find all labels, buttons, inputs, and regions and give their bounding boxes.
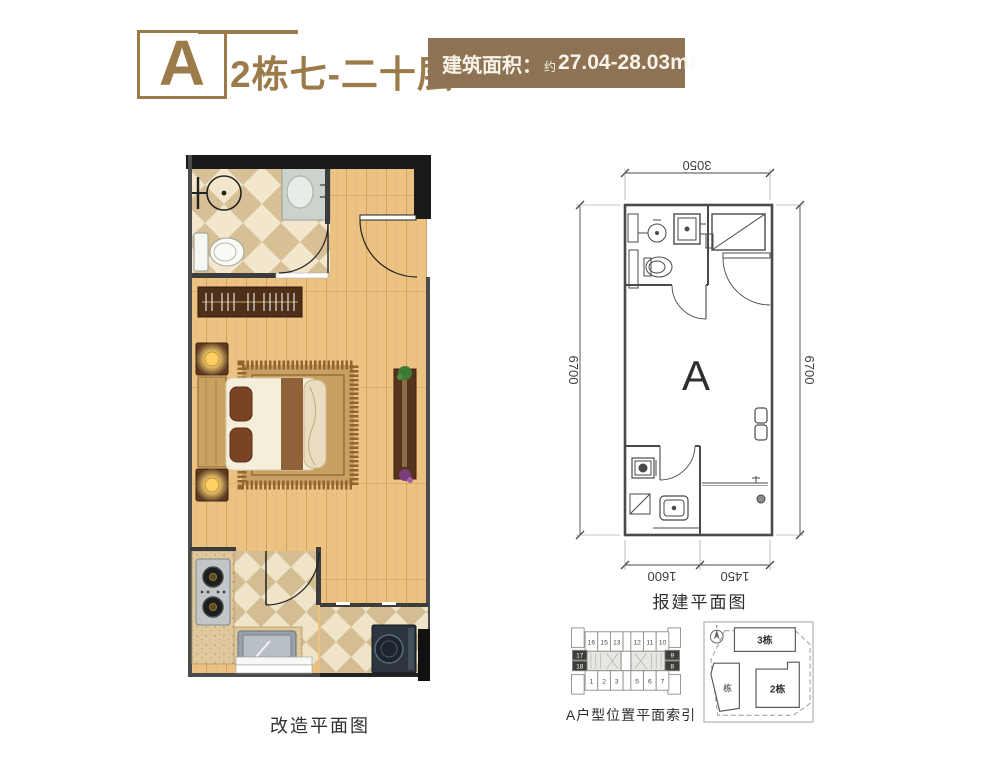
sink-icon <box>287 176 313 208</box>
console-table <box>394 366 416 483</box>
svg-text:10: 10 <box>659 639 667 646</box>
unit-logo-box: A <box>137 30 227 99</box>
svg-text:2: 2 <box>602 678 606 685</box>
floor-drain-icon <box>757 495 765 503</box>
wardrobe <box>198 287 302 317</box>
approval-plan-caption: 报建平面图 <box>620 588 780 613</box>
building-3-label: 3栋 <box>757 634 772 647</box>
approval-plan-figure: 3050 6700 6700 1600 1450 A <box>560 128 830 588</box>
svg-text:3: 3 <box>615 678 619 685</box>
dim-right: 6700 <box>802 356 817 385</box>
dim-top: 3050 <box>683 158 712 173</box>
balcony-door <box>755 408 767 440</box>
svg-text:7: 7 <box>661 678 665 685</box>
washing-machine-icon <box>372 625 416 673</box>
bed <box>195 342 354 502</box>
area-banner: 建筑面积： 约 27.04-28.03m 2 <box>428 38 685 88</box>
toilet-icon <box>646 257 672 277</box>
svg-text:15: 15 <box>600 639 608 646</box>
bathroom <box>192 168 330 278</box>
svg-text:12: 12 <box>633 639 641 646</box>
renovation-plan-caption: 改造平面图 <box>240 712 400 738</box>
svg-text:16: 16 <box>588 639 596 646</box>
room-label: A <box>682 352 710 399</box>
area-superscript: 2 <box>690 57 696 69</box>
plan-kitchen <box>625 446 768 535</box>
svg-text:8: 8 <box>670 663 674 670</box>
building-floor-title: 2栋七-二十层 <box>230 44 430 98</box>
kitchen-sink-icon <box>238 631 296 661</box>
kitchen <box>190 547 321 673</box>
svg-text:18: 18 <box>576 663 584 670</box>
plan-entry <box>706 214 770 305</box>
dim-bottom-left: 1600 <box>648 569 677 584</box>
svg-text:1: 1 <box>590 678 594 685</box>
dim-bottom-right: 1450 <box>721 569 750 584</box>
stove-icon <box>196 559 230 625</box>
balcony <box>320 602 430 681</box>
site-plan-figure: 3栋 栋 2栋 <box>701 617 817 727</box>
unit-logo-letter: A <box>159 31 205 95</box>
svg-text:13: 13 <box>613 639 621 646</box>
plan-bathroom <box>625 205 708 319</box>
pillow <box>230 387 252 421</box>
svg-text:9: 9 <box>670 653 674 660</box>
floorplan-sheet: A 2栋七-二十层 建筑面积： 约 27.04-28.03m 2 <box>0 0 1000 766</box>
area-label: 建筑面积： <box>442 49 542 78</box>
dim-left: 6700 <box>566 356 581 385</box>
building-1-label: 栋 <box>723 683 732 694</box>
renovation-plan-figure <box>186 147 431 690</box>
building-2-label: 2栋 <box>770 683 785 696</box>
area-value: 27.04-28.03m <box>558 51 689 75</box>
location-index-caption: A户型位置平面索引 <box>551 705 711 725</box>
location-index-figure: 16 15 13 12 11 10 1 2 3 5 6 7 17 18 9 8 <box>569 624 683 698</box>
svg-text:5: 5 <box>635 678 639 685</box>
svg-text:11: 11 <box>646 639 653 646</box>
svg-text:6: 6 <box>648 678 652 685</box>
pillow <box>230 428 252 462</box>
svg-text:17: 17 <box>576 653 584 660</box>
area-approx: 约 <box>544 58 556 75</box>
